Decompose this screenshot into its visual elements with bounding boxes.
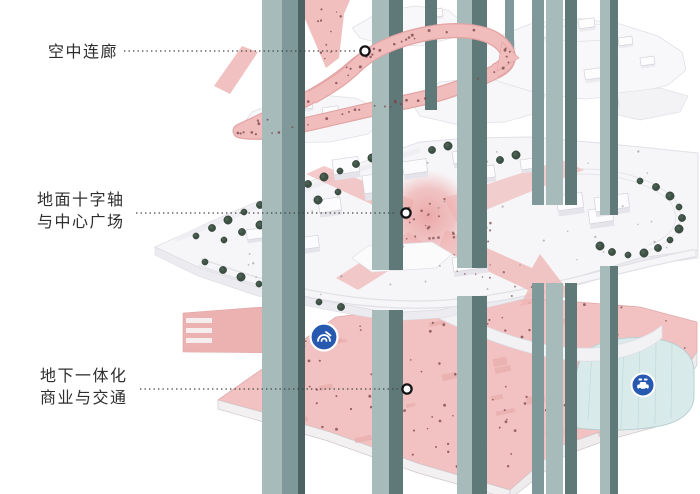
person-dot [320,8,322,10]
person-dot [258,123,261,126]
person-dot [413,430,415,432]
marker-sky-corridor [360,46,369,55]
tree-highlight [513,152,517,156]
person-dot [350,408,352,410]
person-dot [425,281,427,283]
person-dot [400,103,402,105]
person-dot [454,373,457,376]
annotation-text: 商业与交通 [40,388,128,410]
tree-highlight [676,226,680,230]
person-dot [487,240,489,242]
annotation-sky-corridor: 空中连廊 [48,42,118,64]
tree-highlight [242,210,245,213]
figure-canvas: 空中连廊 地面十字轴 与中心广场 地下一体化 商业与交通 [0,0,700,494]
column [472,296,487,494]
person-dot [248,264,250,266]
person-dot [243,131,245,133]
tree-highlight [209,225,213,229]
person-dot [438,362,441,365]
person-dot [447,443,449,445]
person-dot [502,67,505,70]
person-dot [543,240,545,242]
person-dot [389,283,391,285]
tree-highlight [679,215,683,219]
column [565,283,577,494]
person-dot [431,416,433,418]
column [600,0,610,215]
person-dot [499,427,501,429]
tree-highlight [194,234,197,237]
tree-highlight [225,217,229,221]
person-dot [371,54,373,56]
tree-highlight [338,169,341,172]
person-dot [411,34,414,37]
column [457,0,472,268]
person-dot [359,65,362,68]
person-dot [504,329,506,331]
person-dot [394,101,397,104]
person-dot [408,36,411,39]
person-dot [425,225,426,226]
axonometric-illustration [0,0,700,494]
person-dot [340,275,342,277]
person-dot [622,205,624,207]
person-dot [341,113,343,115]
person-dot [603,251,605,253]
person-dot [488,319,490,321]
person-dot [464,273,466,275]
person-dot [278,131,281,134]
tree-highlight [653,184,657,188]
marker-underground [402,384,411,393]
person-dot [567,231,569,233]
person-dot [330,51,331,52]
person-dot [506,419,507,420]
person-dot [410,359,412,361]
person-dot [514,429,517,432]
person-dot [255,276,257,278]
person-dot [453,254,454,255]
person-dot [335,395,337,397]
person-dot [335,82,337,84]
person-dot [320,294,322,296]
person-dot [505,420,508,423]
person-dot [307,124,309,126]
person-dot [405,99,408,102]
tree-highlight [667,193,671,197]
tree-highlight [317,300,320,303]
person-dot [319,360,321,362]
person-dot [507,465,509,467]
person-dot [403,409,406,412]
sky-corridor-band-left [214,46,258,94]
person-dot [432,322,434,324]
person-dot [414,235,416,237]
person-dot [428,29,431,32]
person-dot [453,236,456,239]
column [282,0,298,494]
marker-ground-axis [401,208,410,217]
person-dot [401,41,403,43]
person-dot [651,221,653,223]
person-dot [406,238,408,240]
person-dot [428,213,430,215]
person-dot [511,295,513,297]
person-dot [409,222,411,224]
column [372,310,389,494]
building [618,36,633,46]
person-dot [509,51,511,53]
person-dot [354,108,357,111]
person-dot [250,131,253,134]
person-dot [271,132,273,134]
person-dot [521,336,524,339]
tree-highlight [597,243,601,247]
person-dot [501,205,503,207]
person-dot [583,303,586,306]
ramp-step [186,338,212,343]
person-dot [508,62,510,64]
person-dot [588,163,589,164]
person-dot [420,209,423,212]
person-dot [236,132,239,135]
column [546,283,563,494]
column [565,0,577,205]
column [298,0,305,494]
person-dot [257,119,259,121]
person-dot [325,44,327,46]
person-dot [307,100,310,103]
person-dot [519,264,521,266]
annotation-text: 与中心广场 [37,212,125,234]
person-dot [443,404,446,407]
person-dot [413,218,415,220]
person-dot [316,402,318,404]
person-dot [424,97,427,100]
person-dot [249,253,251,255]
annotation-text: 空中连廊 [48,42,118,64]
person-dot [504,409,506,411]
person-dot [503,271,505,273]
ramp-step [186,328,212,333]
person-dot [308,359,311,362]
person-dot [360,329,362,331]
person-dot [427,162,429,164]
person-dot [373,48,375,50]
tree-highlight [677,205,680,208]
sky-corridor-spur-top [302,0,350,68]
person-dot [456,270,457,271]
tree-highlight [222,238,225,241]
person-dot [428,226,430,228]
tree-highlight [338,304,342,308]
person-dot [429,330,432,333]
tree-highlight [238,274,242,278]
person-dot [317,20,319,22]
person-dot [446,31,448,33]
annotation-text: 地面十字轴 [37,190,125,212]
person-dot [240,132,242,134]
person-dot [347,75,349,77]
person-dot [378,49,381,52]
person-dot [439,420,442,423]
person-dot [346,67,348,69]
person-dot [492,399,494,401]
tree-highlight [305,181,309,185]
person-dot [321,426,323,428]
parking-icon [632,374,655,397]
person-dot [324,58,325,59]
person-dot [528,329,530,331]
person-dot [594,236,596,238]
person-dot [435,446,437,448]
person-dot [452,415,454,417]
person-dot [475,273,477,275]
metro-icon [311,324,338,351]
person-dot [336,11,337,12]
tree-highlight [353,161,357,165]
person-dot [390,106,392,108]
tree-highlight [257,202,261,206]
tree-highlight [203,260,206,263]
person-dot [637,150,639,152]
tree-highlight [655,245,659,249]
person-dot [477,78,479,80]
person-dot [447,451,449,453]
column [262,0,282,494]
tree-highlight [609,249,613,253]
column [610,266,618,494]
building [640,56,655,66]
person-dot [525,396,527,398]
person-dot [311,210,313,212]
tree-highlight [638,179,641,182]
person-dot [514,286,516,288]
person-dot [647,172,649,174]
person-dot [489,229,491,231]
person-dot [405,38,407,40]
person-dot [505,386,507,388]
person-dot [384,106,386,108]
tree-highlight [497,157,501,161]
person-dot [482,276,484,278]
person-dot [510,453,512,455]
column [425,0,437,110]
person-dot [496,151,498,153]
person-dot [349,68,351,70]
person-dot [437,207,439,209]
tree-highlight [429,147,433,151]
person-dot [653,241,655,243]
person-dot [620,306,622,308]
person-dot [493,71,495,73]
annotation-ground-axis: 地面十字轴 与中心广场 [37,190,125,234]
column [389,310,403,494]
person-dot [666,247,667,248]
person-dot [414,38,416,40]
tree-highlight [321,174,325,178]
person-dot [684,347,686,349]
ramp-step [186,318,212,323]
person-dot [348,111,350,113]
building [246,228,264,240]
building [578,18,595,29]
column [610,0,618,215]
person-dot [358,109,360,111]
tree-highlight [220,267,224,271]
annotation-underground: 地下一体化 商业与交通 [40,366,128,410]
person-dot [368,395,371,398]
person-dot [502,317,504,319]
person-dot [252,262,254,264]
person-dot [325,117,328,120]
person-dot [393,43,396,46]
tree-highlight [239,229,243,233]
person-dot [637,224,638,225]
person-dot [452,231,454,233]
column [600,266,610,494]
person-dot [439,265,440,266]
person-dot [335,428,338,431]
tree-highlight [626,253,629,256]
person-dot [339,15,341,17]
column [546,0,563,205]
person-dot [524,402,527,405]
person-dot [320,19,322,21]
tree-highlight [336,190,339,193]
person-dot [505,48,507,50]
person-dot [489,264,490,265]
column [457,296,472,494]
tree-highlight [641,250,645,254]
person-dot [429,203,431,205]
person-dot [489,222,492,225]
person-dot [369,56,371,58]
person-dot [443,200,445,202]
person-dot [487,288,489,290]
person-dot [427,428,429,430]
person-dot [267,119,269,121]
person-dot [576,259,577,260]
person-dot [432,237,435,240]
person-dot [412,454,414,456]
tree-highlight [668,238,671,241]
person-dot [506,56,508,58]
tree-highlight [257,222,261,226]
person-dot [305,340,307,342]
person-dot [255,133,257,135]
tree-highlight [257,282,260,285]
underground-level [183,299,697,494]
person-dot [489,277,491,279]
tree-highlight [445,143,449,147]
person-dot [258,121,260,123]
person-dot [443,198,445,200]
person-dot [330,31,332,33]
person-dot [428,237,431,240]
person-dot [417,99,420,102]
column [532,0,544,205]
person-dot [374,105,376,107]
tree-highlight [315,197,319,201]
person-dot [665,320,667,322]
person-dot [320,52,322,54]
person-dot [291,126,293,128]
person-dot [309,386,311,388]
person-dot [359,325,361,327]
person-dot [421,371,423,373]
person-dot [438,215,440,217]
person-dot [442,323,445,326]
person-dot [473,29,476,32]
column [532,283,544,494]
person-dot [437,236,440,239]
annotation-text: 地下一体化 [40,366,128,388]
